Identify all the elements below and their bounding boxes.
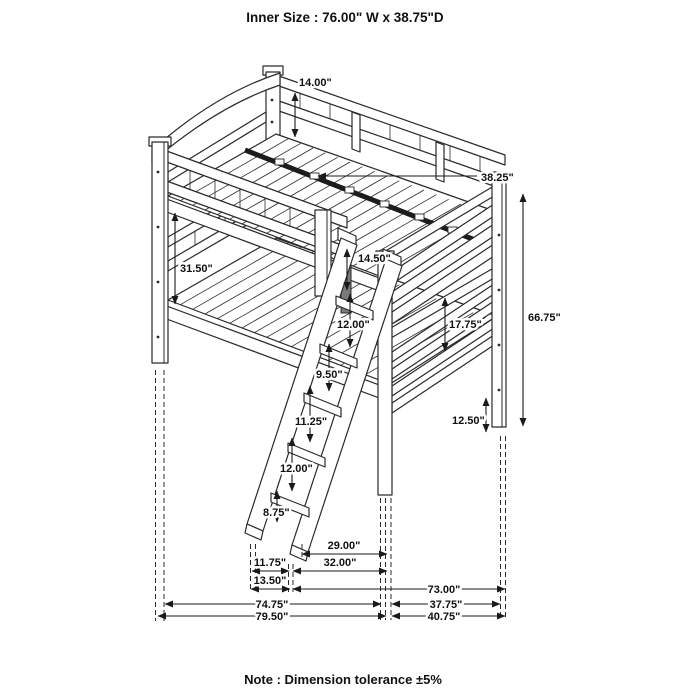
dim-label-ladder-to-leg: 29.00" xyxy=(328,540,361,552)
dim-ladder-depth: 11.75" xyxy=(252,557,289,571)
dim-label-footboard-height: 17.75" xyxy=(449,319,482,331)
dim-label-overall-length: 79.50" xyxy=(256,611,289,623)
tolerance-note: Note : Dimension tolerance ±5% xyxy=(244,672,442,687)
dim-overall-height: 66.75" xyxy=(523,194,561,426)
dim-label-leg-height: 12.50" xyxy=(452,415,485,427)
dim-label-ladder-step-5: 8.75" xyxy=(263,507,290,519)
dim-leg-height: 12.50" xyxy=(452,398,486,432)
bunk-bed-dimension-sheet: Inner Size : 76.00" W x 38.75"D xyxy=(0,0,700,700)
dim-label-depth-inner: 37.75" xyxy=(430,599,463,611)
dim-ladder-depth-outer: 13.50" xyxy=(251,575,290,589)
dim-label-ladder-step-1: 12.00" xyxy=(337,319,370,331)
dim-label-inner-length: 73.00" xyxy=(428,584,461,596)
dim-label-ladder-to-leg-outer: 32.00" xyxy=(324,557,357,569)
dim-label-length-to-leg: 74.75" xyxy=(256,599,289,611)
dim-depth-inner: 37.75" xyxy=(392,599,500,611)
dim-overall-length: 79.50" xyxy=(158,611,386,623)
dim-inner-length: 73.00" xyxy=(293,584,505,596)
dim-ladder-to-leg: 29.00" xyxy=(302,540,387,554)
dim-label-guard-rail-height: 14.50" xyxy=(358,253,391,265)
page-title: Inner Size : 76.00" W x 38.75"D xyxy=(246,10,444,25)
dim-label-headboard-height: 14.00" xyxy=(299,77,332,89)
dim-ladder-to-leg-outer: 32.00" xyxy=(293,557,387,571)
dim-label-ladder-step-3: 11.25" xyxy=(295,416,327,428)
bunk-bed-diagram: Inner Size : 76.00" W x 38.75"D xyxy=(0,0,700,700)
dim-label-overall-height: 66.75" xyxy=(528,312,561,324)
dim-label-slat-rail-length: 38.25" xyxy=(481,172,514,184)
dim-label-bunk-gap-height: 31.50" xyxy=(180,263,213,275)
head-front-leg xyxy=(152,142,168,363)
dim-label-ladder-step-2: 9.50" xyxy=(316,369,343,381)
dim-length-to-leg: 74.75" xyxy=(165,599,381,611)
dim-label-ladder-step-4: 12.00" xyxy=(280,463,313,475)
dim-overall-depth: 40.75" xyxy=(392,611,505,623)
dim-label-overall-depth: 40.75" xyxy=(428,611,461,623)
bed-line-art xyxy=(149,66,508,561)
dim-label-ladder-depth-outer: 13.50" xyxy=(254,575,287,587)
dim-label-ladder-depth: 11.75" xyxy=(254,557,286,569)
